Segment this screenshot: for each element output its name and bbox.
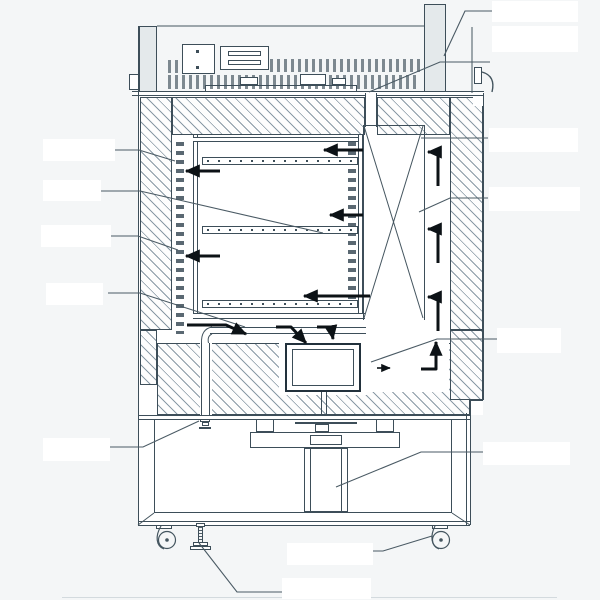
- relay-box: [220, 46, 269, 70]
- circulation-duct: [363, 125, 425, 320]
- motor-coupling: [315, 424, 329, 432]
- terminal-row-upper: [270, 59, 420, 72]
- exhaust-duct: [424, 4, 446, 93]
- motor-body-line: [341, 448, 342, 512]
- leader-bottom-1: [373, 536, 432, 551]
- callout-label-left-3: [41, 225, 111, 247]
- right-duct-cutout: [363, 318, 449, 392]
- right-wall-notch: [473, 97, 483, 106]
- duct-riser-channel: [365, 93, 377, 127]
- base-right-edge-outer: [470, 400, 471, 525]
- caster-left: [157, 526, 175, 549]
- base-right-step: [470, 400, 483, 401]
- left-perforated-liner: [176, 142, 184, 334]
- right-wall-bottom-insulation: [450, 330, 483, 400]
- back-panel: [139, 26, 157, 92]
- vent-hook: [482, 72, 493, 92]
- deck-component: [300, 74, 326, 85]
- callout-label-right-2: [492, 26, 578, 52]
- drain-pipe: [201, 343, 210, 415]
- callout-label-left-1: [43, 139, 115, 161]
- callout-label-right-6: [483, 442, 570, 465]
- base-left-edge: [138, 26, 139, 525]
- callout-label-bottom-1: [287, 543, 373, 565]
- terminal-row-lower: [168, 75, 420, 89]
- callout-label-right-1: [492, 1, 578, 22]
- relay-slot: [228, 51, 261, 56]
- caster-mount-right: [432, 525, 448, 529]
- callout-label-right-4: [489, 187, 580, 211]
- machine-right-edge: [483, 93, 484, 400]
- base-right-edge-inner: [466, 413, 467, 525]
- leader-right-1: [444, 11, 493, 56]
- chamber-floor: [193, 313, 365, 319]
- relay-slot: [228, 60, 261, 65]
- leveling-foot-stem: [198, 527, 203, 542]
- shelf-3: [202, 300, 358, 308]
- callout-label-left-4: [46, 283, 103, 305]
- chamber-ceiling: [193, 137, 363, 142]
- shelf-1: [202, 157, 358, 165]
- callout-label-right-5: [497, 328, 561, 353]
- callout-label-left-2: [43, 180, 101, 201]
- motor-support-block: [256, 419, 274, 432]
- left-wall-insulation: [140, 97, 172, 330]
- deck-plate: [132, 91, 484, 96]
- callout-label-left-5: [43, 438, 110, 461]
- right-wall-insulation: [450, 97, 483, 330]
- transformer-dot: [196, 66, 199, 69]
- motor-mount-center: [310, 435, 342, 445]
- fan-shaft: [321, 392, 327, 415]
- terminal-row-upper-left: [168, 60, 181, 73]
- top-insulation-left: [172, 97, 365, 135]
- callout-label-right-3: [489, 128, 578, 152]
- return-air-duct: [210, 327, 366, 334]
- deck-component: [332, 78, 346, 85]
- transformer-box: [182, 44, 215, 74]
- chamber-left-wall: [193, 135, 198, 318]
- callout-label-bottom-2: [282, 578, 371, 599]
- left-wall-lower-insulation: [140, 330, 157, 385]
- deck-component: [240, 77, 258, 85]
- caster-right: [432, 526, 450, 549]
- shelf-2: [202, 226, 358, 234]
- diagram-canvas: [0, 0, 600, 600]
- motor-body-line: [310, 448, 311, 512]
- base-bottom-rail: [138, 521, 470, 526]
- transformer-dot: [196, 50, 199, 53]
- caster-mount-left: [156, 525, 172, 529]
- vent-fitting: [474, 67, 482, 84]
- fan-box-inner: [292, 349, 354, 386]
- motor-support-block: [376, 419, 394, 432]
- leveling-foot-pad: [190, 546, 211, 550]
- leader-bottom-2: [199, 543, 282, 592]
